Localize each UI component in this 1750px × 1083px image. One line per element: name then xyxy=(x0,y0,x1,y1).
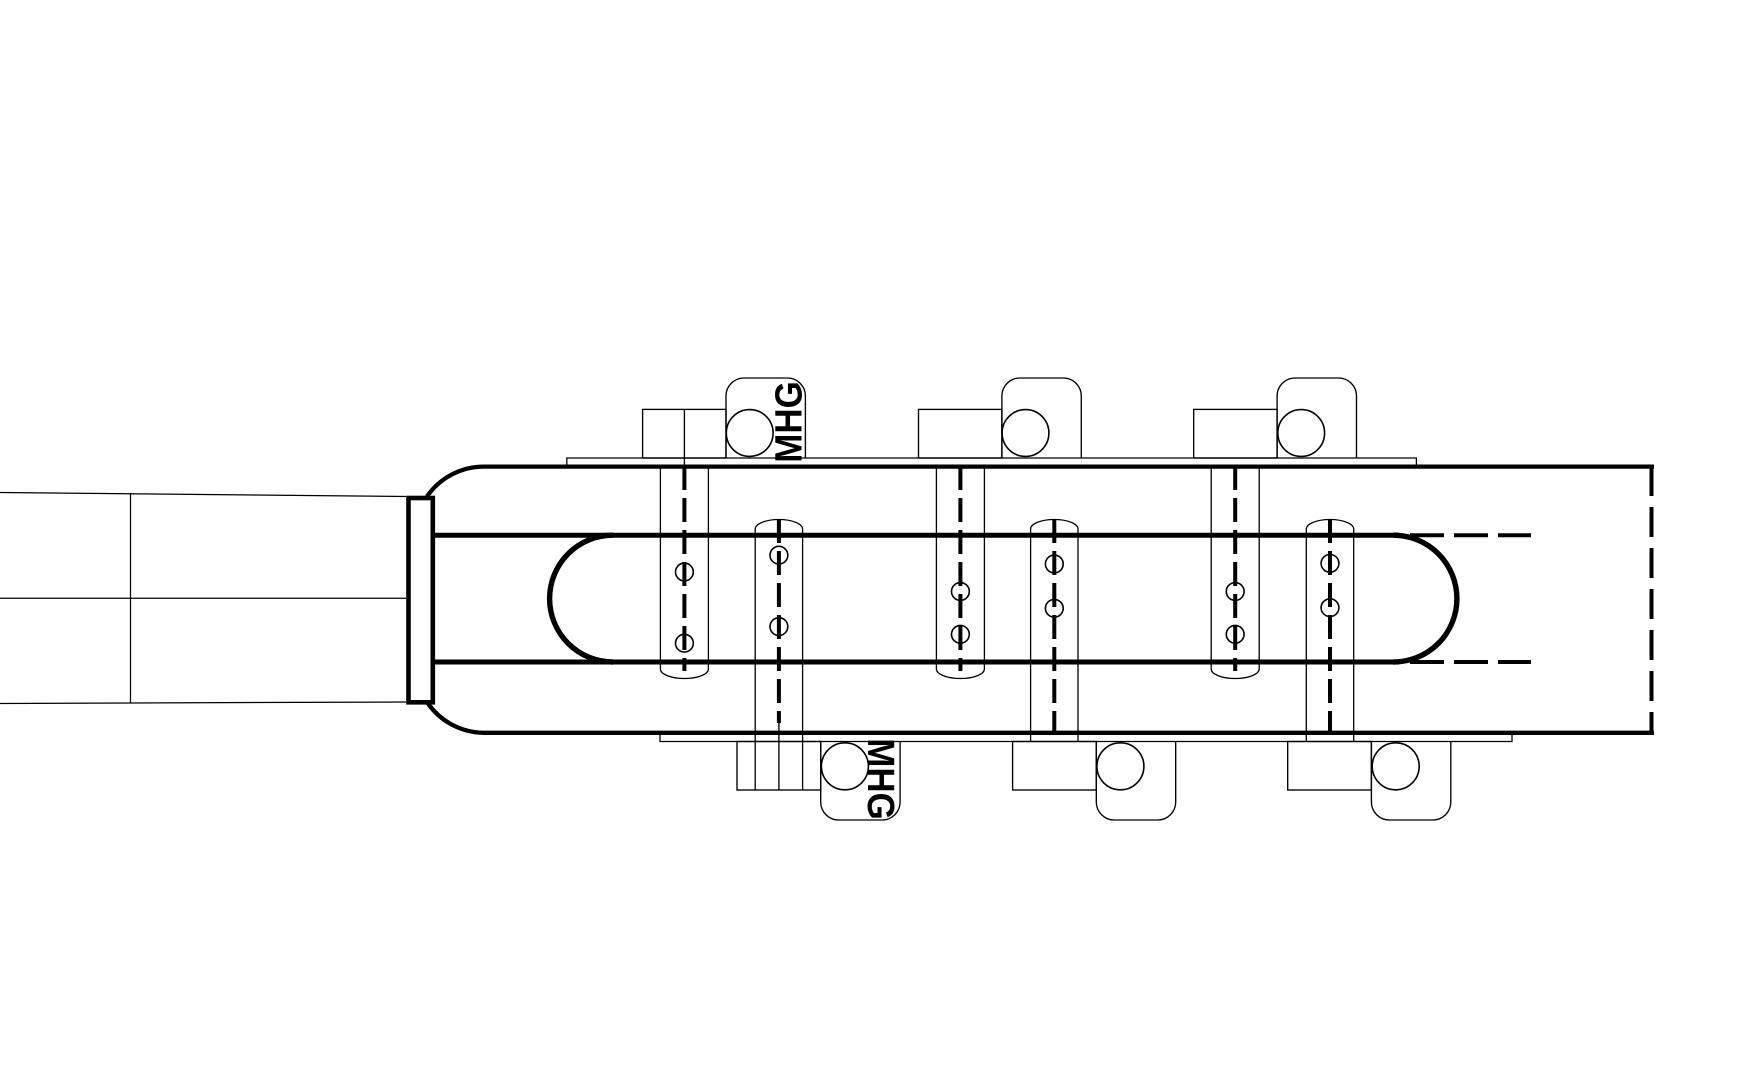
svg-text:MHG: MHG xyxy=(767,381,810,463)
svg-text:MHG: MHG xyxy=(860,738,903,820)
